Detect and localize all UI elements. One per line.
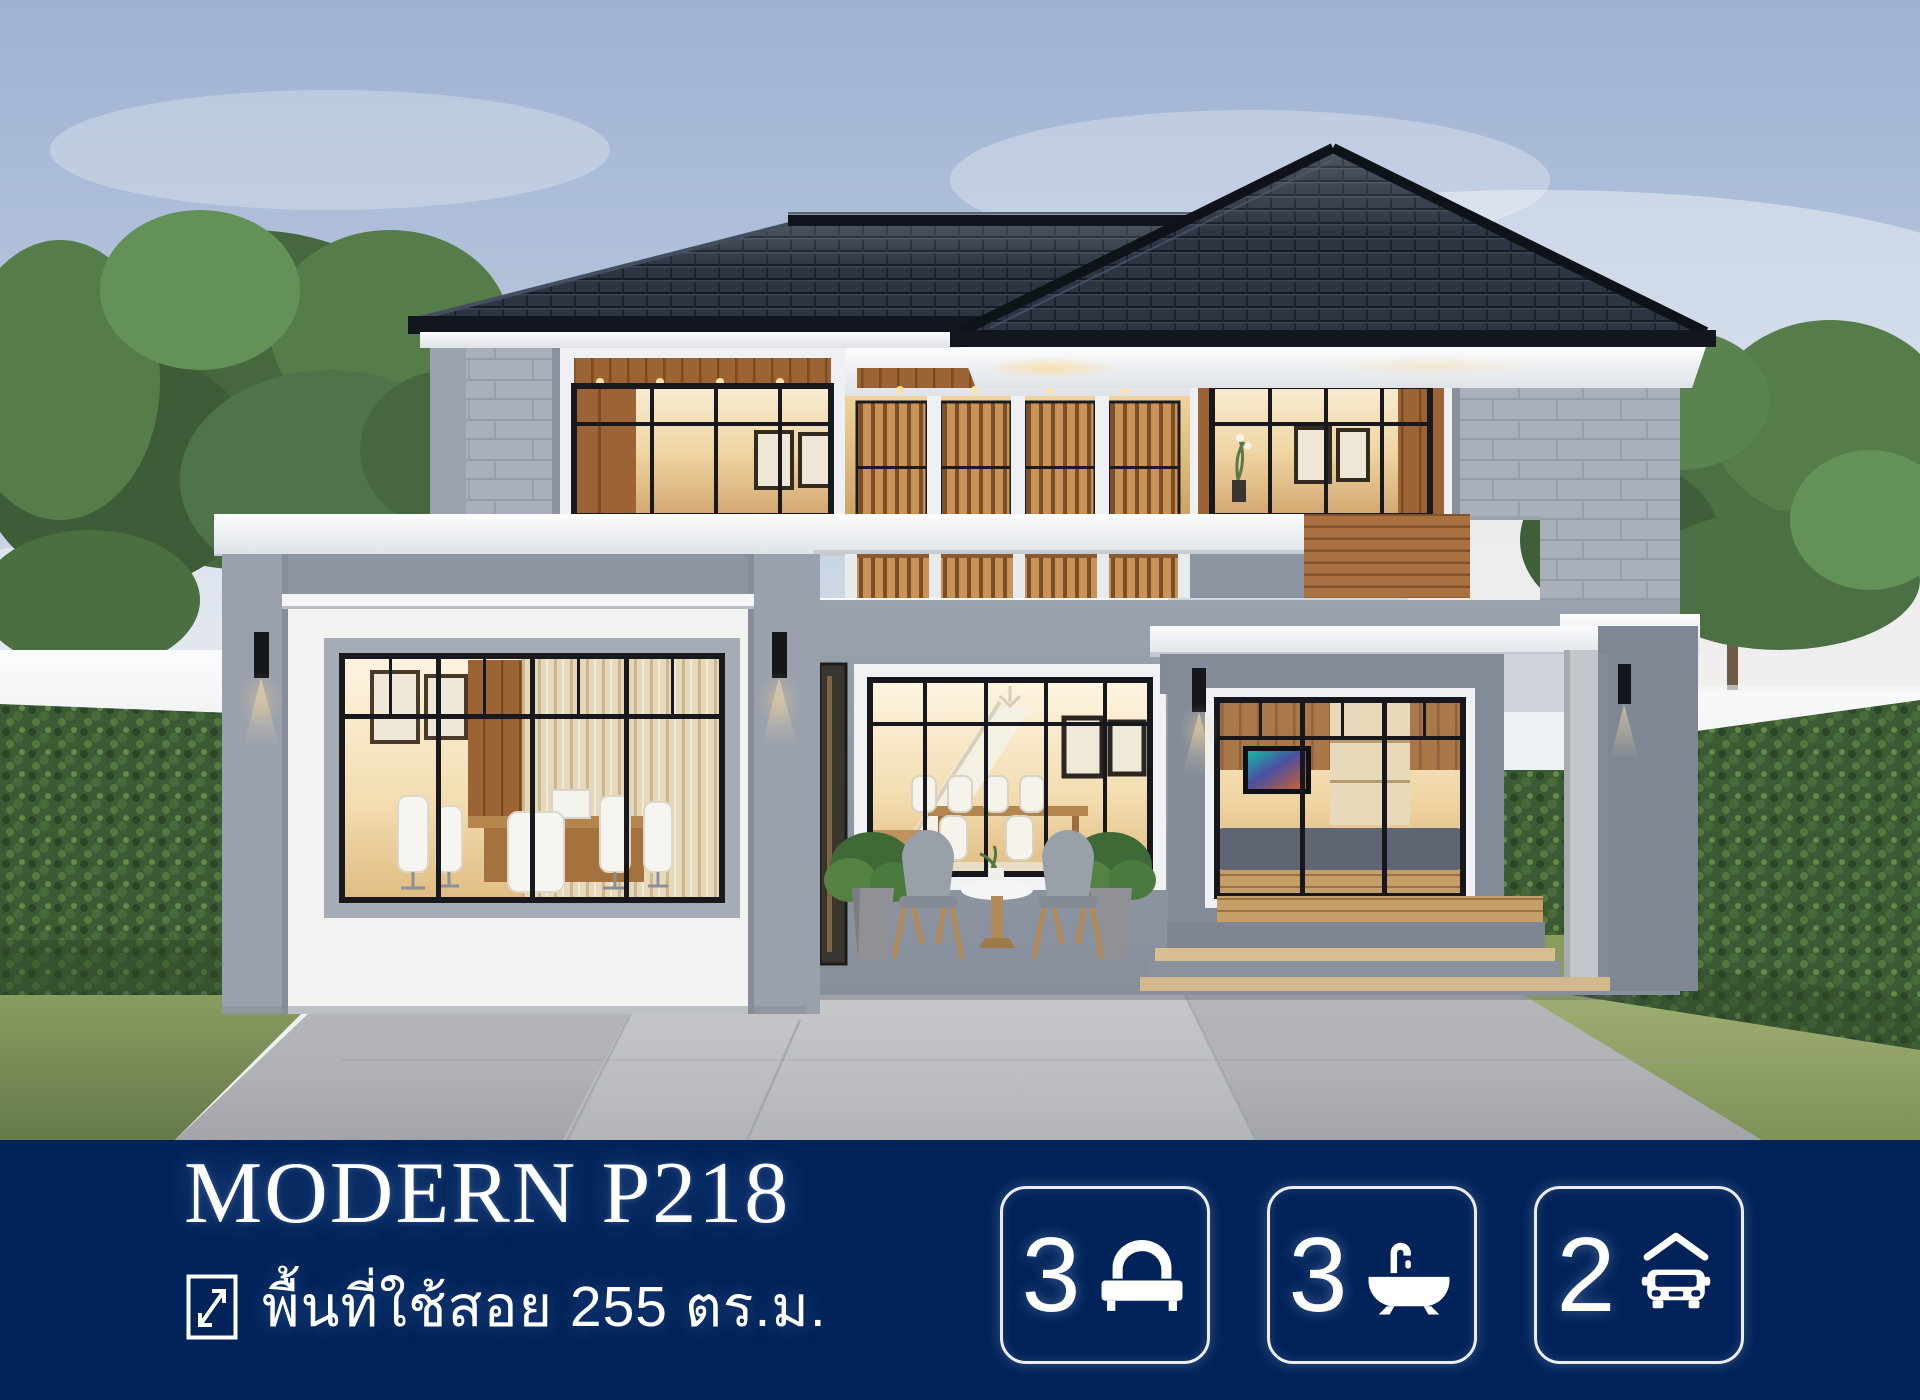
bedroom-count: 3 xyxy=(1022,1222,1081,1328)
info-banner: MODERN P218 พื้นที่ใช้สอย 255 ตร.ม. 3 3 xyxy=(0,1140,1920,1400)
plan-title: MODERN P218 xyxy=(184,1146,790,1243)
living-room-window xyxy=(1205,688,1475,908)
area-row: พื้นที่ใช้สอย 255 ตร.ม. xyxy=(186,1262,827,1352)
usable-area-text: พื้นที่ใช้สอย 255 ตร.ม. xyxy=(262,1262,827,1352)
badge-bedrooms: 3 xyxy=(1000,1186,1210,1364)
balcony-railing xyxy=(845,554,1190,598)
right-porch xyxy=(1140,614,1700,991)
house-plan-poster: MODERN P218 พื้นที่ใช้สอย 255 ตร.ม. 3 3 xyxy=(0,0,1920,1400)
badge-bathrooms: 3 xyxy=(1267,1186,1477,1364)
bathtub-icon xyxy=(1363,1234,1455,1316)
parking-count: 2 xyxy=(1557,1222,1616,1328)
bed-icon xyxy=(1096,1235,1188,1315)
badge-parking: 2 xyxy=(1534,1186,1744,1364)
office-window xyxy=(324,638,740,918)
driveway xyxy=(170,991,1770,1145)
expand-arrow-icon xyxy=(186,1274,238,1340)
house-render xyxy=(0,0,1920,1145)
house-render-svg xyxy=(0,0,1920,1145)
upper-left-window xyxy=(560,346,845,518)
car-icon xyxy=(1631,1227,1721,1323)
left-wing xyxy=(214,514,820,1014)
bathroom-count: 3 xyxy=(1289,1222,1348,1328)
